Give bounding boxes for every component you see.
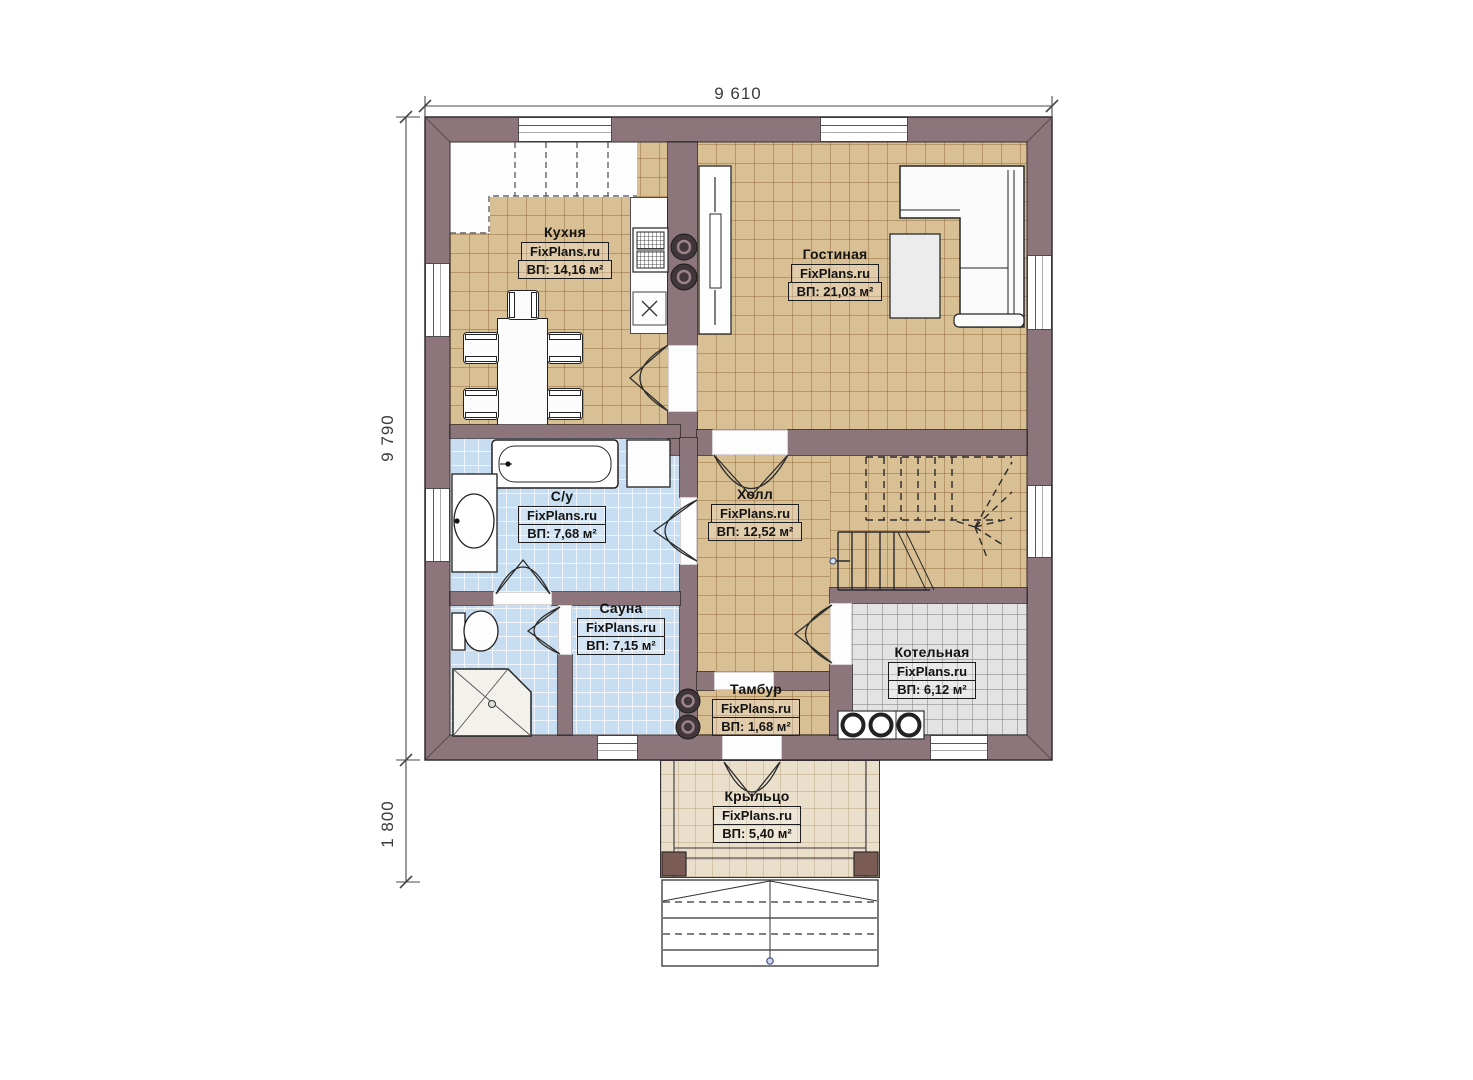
area-box: ВП: 7,15 м² xyxy=(577,636,665,655)
entrance-door-opening xyxy=(722,735,782,760)
porch-steps xyxy=(662,880,878,966)
dimension-left-height: 9 790 xyxy=(378,388,398,488)
area-box: ВП: 12,52 м² xyxy=(708,522,803,541)
door-opening xyxy=(668,345,697,412)
kitchen-chair xyxy=(547,332,583,364)
window xyxy=(930,735,988,760)
room-title: Кухня xyxy=(490,224,640,240)
kitchen-chair xyxy=(463,332,499,364)
room-title: Котельная xyxy=(857,644,1007,660)
area-box: ВП: 7,68 м² xyxy=(518,524,606,543)
brand-box: FixPlans.ru xyxy=(712,699,800,718)
wall-living-hall-a xyxy=(697,430,712,455)
wall-boiler-top xyxy=(830,588,1027,603)
room-label-kitchen: Кухня FixPlans.ru ВП: 14,16 м² xyxy=(490,224,640,279)
room-title: Гостиная xyxy=(760,246,910,262)
window xyxy=(597,735,638,760)
window xyxy=(518,117,612,142)
door-opening xyxy=(493,592,552,605)
room-title: Холл xyxy=(680,486,830,502)
stair-floor xyxy=(830,455,1027,588)
room-title: С/у xyxy=(487,488,637,504)
wall-bath-sauna-a xyxy=(450,592,493,605)
brand-box: FixPlans.ru xyxy=(888,662,976,681)
brand-box: FixPlans.ru xyxy=(521,242,609,261)
wall-kitchen-bath xyxy=(450,425,680,438)
wall-wc-sauna xyxy=(558,655,572,735)
area-box: ВП: 1,68 м² xyxy=(712,717,800,736)
dimension-porch-depth: 1 800 xyxy=(378,774,398,874)
window xyxy=(820,117,908,142)
kitchen-counter-left xyxy=(450,197,490,233)
kitchen-chair xyxy=(463,388,499,420)
floor-plan-canvas: Кухня FixPlans.ru ВП: 14,16 м² Гостиная … xyxy=(0,0,1473,1080)
kitchen-chair xyxy=(507,290,539,320)
window xyxy=(1027,255,1052,330)
kitchen-counter-top xyxy=(450,142,637,197)
window xyxy=(425,263,450,337)
wall-exterior-right xyxy=(1027,142,1052,735)
brand-box: FixPlans.ru xyxy=(577,618,665,637)
area-box: ВП: 21,03 м² xyxy=(788,282,883,301)
wall-exterior-left xyxy=(425,142,450,735)
room-label-tambour: Тамбур FixPlans.ru ВП: 1,68 м² xyxy=(681,681,831,736)
room-label-bathroom: С/у FixPlans.ru ВП: 7,68 м² xyxy=(487,488,637,543)
door-opening xyxy=(712,430,788,455)
brand-box: FixPlans.ru xyxy=(711,504,799,523)
washing-machine-label: Ст.М. xyxy=(627,455,670,467)
wall-kitchen-living-a xyxy=(668,142,697,345)
room-title: Тамбур xyxy=(681,681,831,697)
area-box: ВП: 6,12 м² xyxy=(888,680,976,699)
brand-box: FixPlans.ru xyxy=(791,264,879,283)
room-label-living: Гостиная FixPlans.ru ВП: 21,03 м² xyxy=(760,246,910,301)
brand-box: FixPlans.ru xyxy=(518,506,606,525)
room-label-sauna: Сауна FixPlans.ru ВП: 7,15 м² xyxy=(546,600,696,655)
room-label-hall: Холл FixPlans.ru ВП: 12,52 м² xyxy=(680,486,830,541)
room-label-boiler: Котельная FixPlans.ru ВП: 6,12 м² xyxy=(857,644,1007,699)
room-label-porch: Крыльцо FixPlans.ru ВП: 5,40 м² xyxy=(682,788,832,843)
kitchen-chair xyxy=(547,388,583,420)
wall-boiler-left xyxy=(830,665,852,735)
wall-living-hall-b xyxy=(788,430,1027,455)
kitchen-table xyxy=(497,318,548,432)
area-box: ВП: 5,40 м² xyxy=(713,824,801,843)
room-title: Сауна xyxy=(546,600,696,616)
dimension-top-width: 9 610 xyxy=(688,84,788,104)
area-box: ВП: 14,16 м² xyxy=(518,260,613,279)
window xyxy=(1027,485,1052,558)
room-title: Крыльцо xyxy=(682,788,832,804)
door-opening xyxy=(830,603,852,665)
brand-box: FixPlans.ru xyxy=(713,806,801,825)
window xyxy=(425,488,450,562)
